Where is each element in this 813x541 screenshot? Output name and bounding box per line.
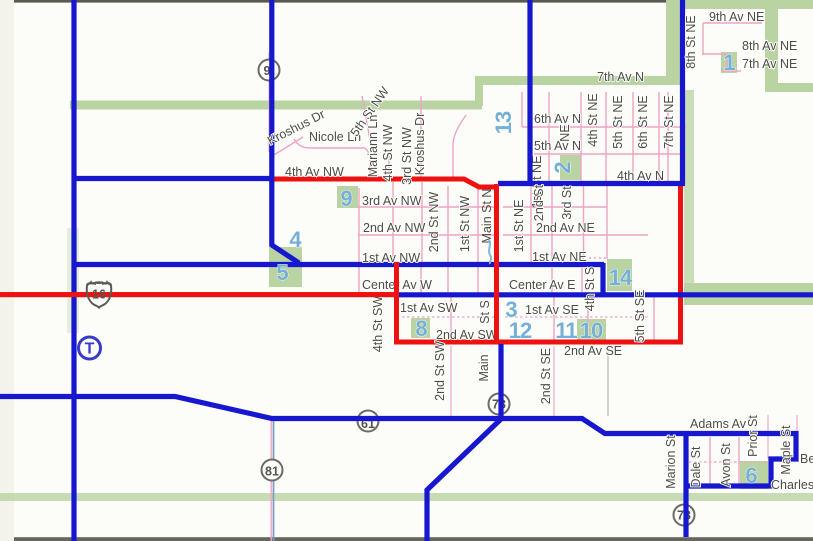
svg-text:Be: Be <box>800 452 813 466</box>
svg-text:4th St NW: 4th St NW <box>381 124 395 181</box>
svg-text:2nd St: 2nd St <box>532 184 546 221</box>
svg-text:2nd Av NW: 2nd Av NW <box>363 221 426 235</box>
svg-text:9th Av NE: 9th Av NE <box>709 10 764 24</box>
svg-text:St S: St S <box>478 300 492 324</box>
svg-text:1st Av SW: 1st Av SW <box>400 301 458 315</box>
svg-text:Kroshus Dr: Kroshus Dr <box>413 113 427 176</box>
svg-text:4th St NE: 4th St NE <box>586 93 600 147</box>
svg-text:5th St NE: 5th St NE <box>611 95 625 149</box>
svg-text:Avon St: Avon St <box>719 443 733 487</box>
svg-text:1st St NW: 1st St NW <box>458 196 472 252</box>
svg-text:Charles: Charles <box>771 478 813 492</box>
svg-text:1: 1 <box>723 50 735 75</box>
svg-text:4th Av N: 4th Av N <box>617 169 664 183</box>
svg-text:Main St N: Main St N <box>480 189 494 244</box>
svg-text:4th Av NW: 4th Av NW <box>285 165 344 179</box>
svg-text:1st Av NE: 1st Av NE <box>532 250 587 264</box>
svg-text:Maple St: Maple St <box>779 425 793 475</box>
svg-text:3rd Av NW: 3rd Av NW <box>362 194 422 208</box>
svg-text:Marion St: Marion St <box>664 435 678 489</box>
svg-text:5th St SE: 5th St SE <box>633 290 647 343</box>
svg-text:Adams Av: Adams Av <box>690 417 747 431</box>
svg-text:4: 4 <box>289 227 302 252</box>
svg-text:1st St NE: 1st St NE <box>512 200 526 253</box>
svg-text:12: 12 <box>509 318 532 343</box>
svg-text:8th Av NE: 8th Av NE <box>742 39 797 53</box>
svg-text:5: 5 <box>276 260 288 285</box>
svg-text:13: 13 <box>491 111 516 134</box>
svg-text:Prior St: Prior St <box>746 415 760 457</box>
svg-text:81: 81 <box>265 465 279 479</box>
svg-text:7th Av NE: 7th Av NE <box>742 57 797 71</box>
svg-text:NE: NE <box>558 124 572 141</box>
svg-text:Dale St: Dale St <box>689 446 703 488</box>
svg-text:2nd Av SE: 2nd Av SE <box>564 344 622 358</box>
svg-text:8th St NE: 8th St NE <box>684 15 698 69</box>
svg-text:6th Av N: 6th Av N <box>534 112 581 126</box>
svg-text:1st Av SE: 1st Av SE <box>525 303 579 317</box>
svg-text:16: 16 <box>92 288 106 302</box>
svg-text:9: 9 <box>340 186 352 211</box>
svg-text:6: 6 <box>745 463 757 488</box>
svg-text:4th St S: 4th St S <box>583 267 597 311</box>
svg-text:3rd St: 3rd St <box>560 186 574 220</box>
svg-text:4th St SW: 4th St SW <box>371 296 385 352</box>
svg-text:2nd Av NE: 2nd Av NE <box>536 221 595 235</box>
svg-text:6th St NE: 6th St NE <box>636 95 650 149</box>
svg-text:T: T <box>85 341 95 358</box>
svg-text:Mariann Ln: Mariann Ln <box>366 115 380 178</box>
svg-text:10: 10 <box>580 318 603 343</box>
svg-text:2nd St SW: 2nd St SW <box>433 341 447 401</box>
svg-text:7th St NE: 7th St NE <box>662 95 676 149</box>
svg-text:8: 8 <box>415 316 427 341</box>
svg-text:7th Av N: 7th Av N <box>597 70 644 84</box>
svg-text:Center Av E: Center Av E <box>509 278 575 292</box>
svg-text:3rd St NW: 3rd St NW <box>400 127 414 185</box>
svg-text:1st Av NW: 1st Av NW <box>362 251 420 265</box>
svg-text:Main: Main <box>477 354 491 381</box>
svg-text:2: 2 <box>550 162 575 174</box>
svg-text:11: 11 <box>555 318 577 343</box>
svg-text:2nd St SE: 2nd St SE <box>539 348 553 404</box>
svg-text:2nd Av SW: 2nd Av SW <box>436 328 498 342</box>
svg-text:14: 14 <box>609 265 633 290</box>
svg-text:2nd St NW: 2nd St NW <box>427 192 441 253</box>
